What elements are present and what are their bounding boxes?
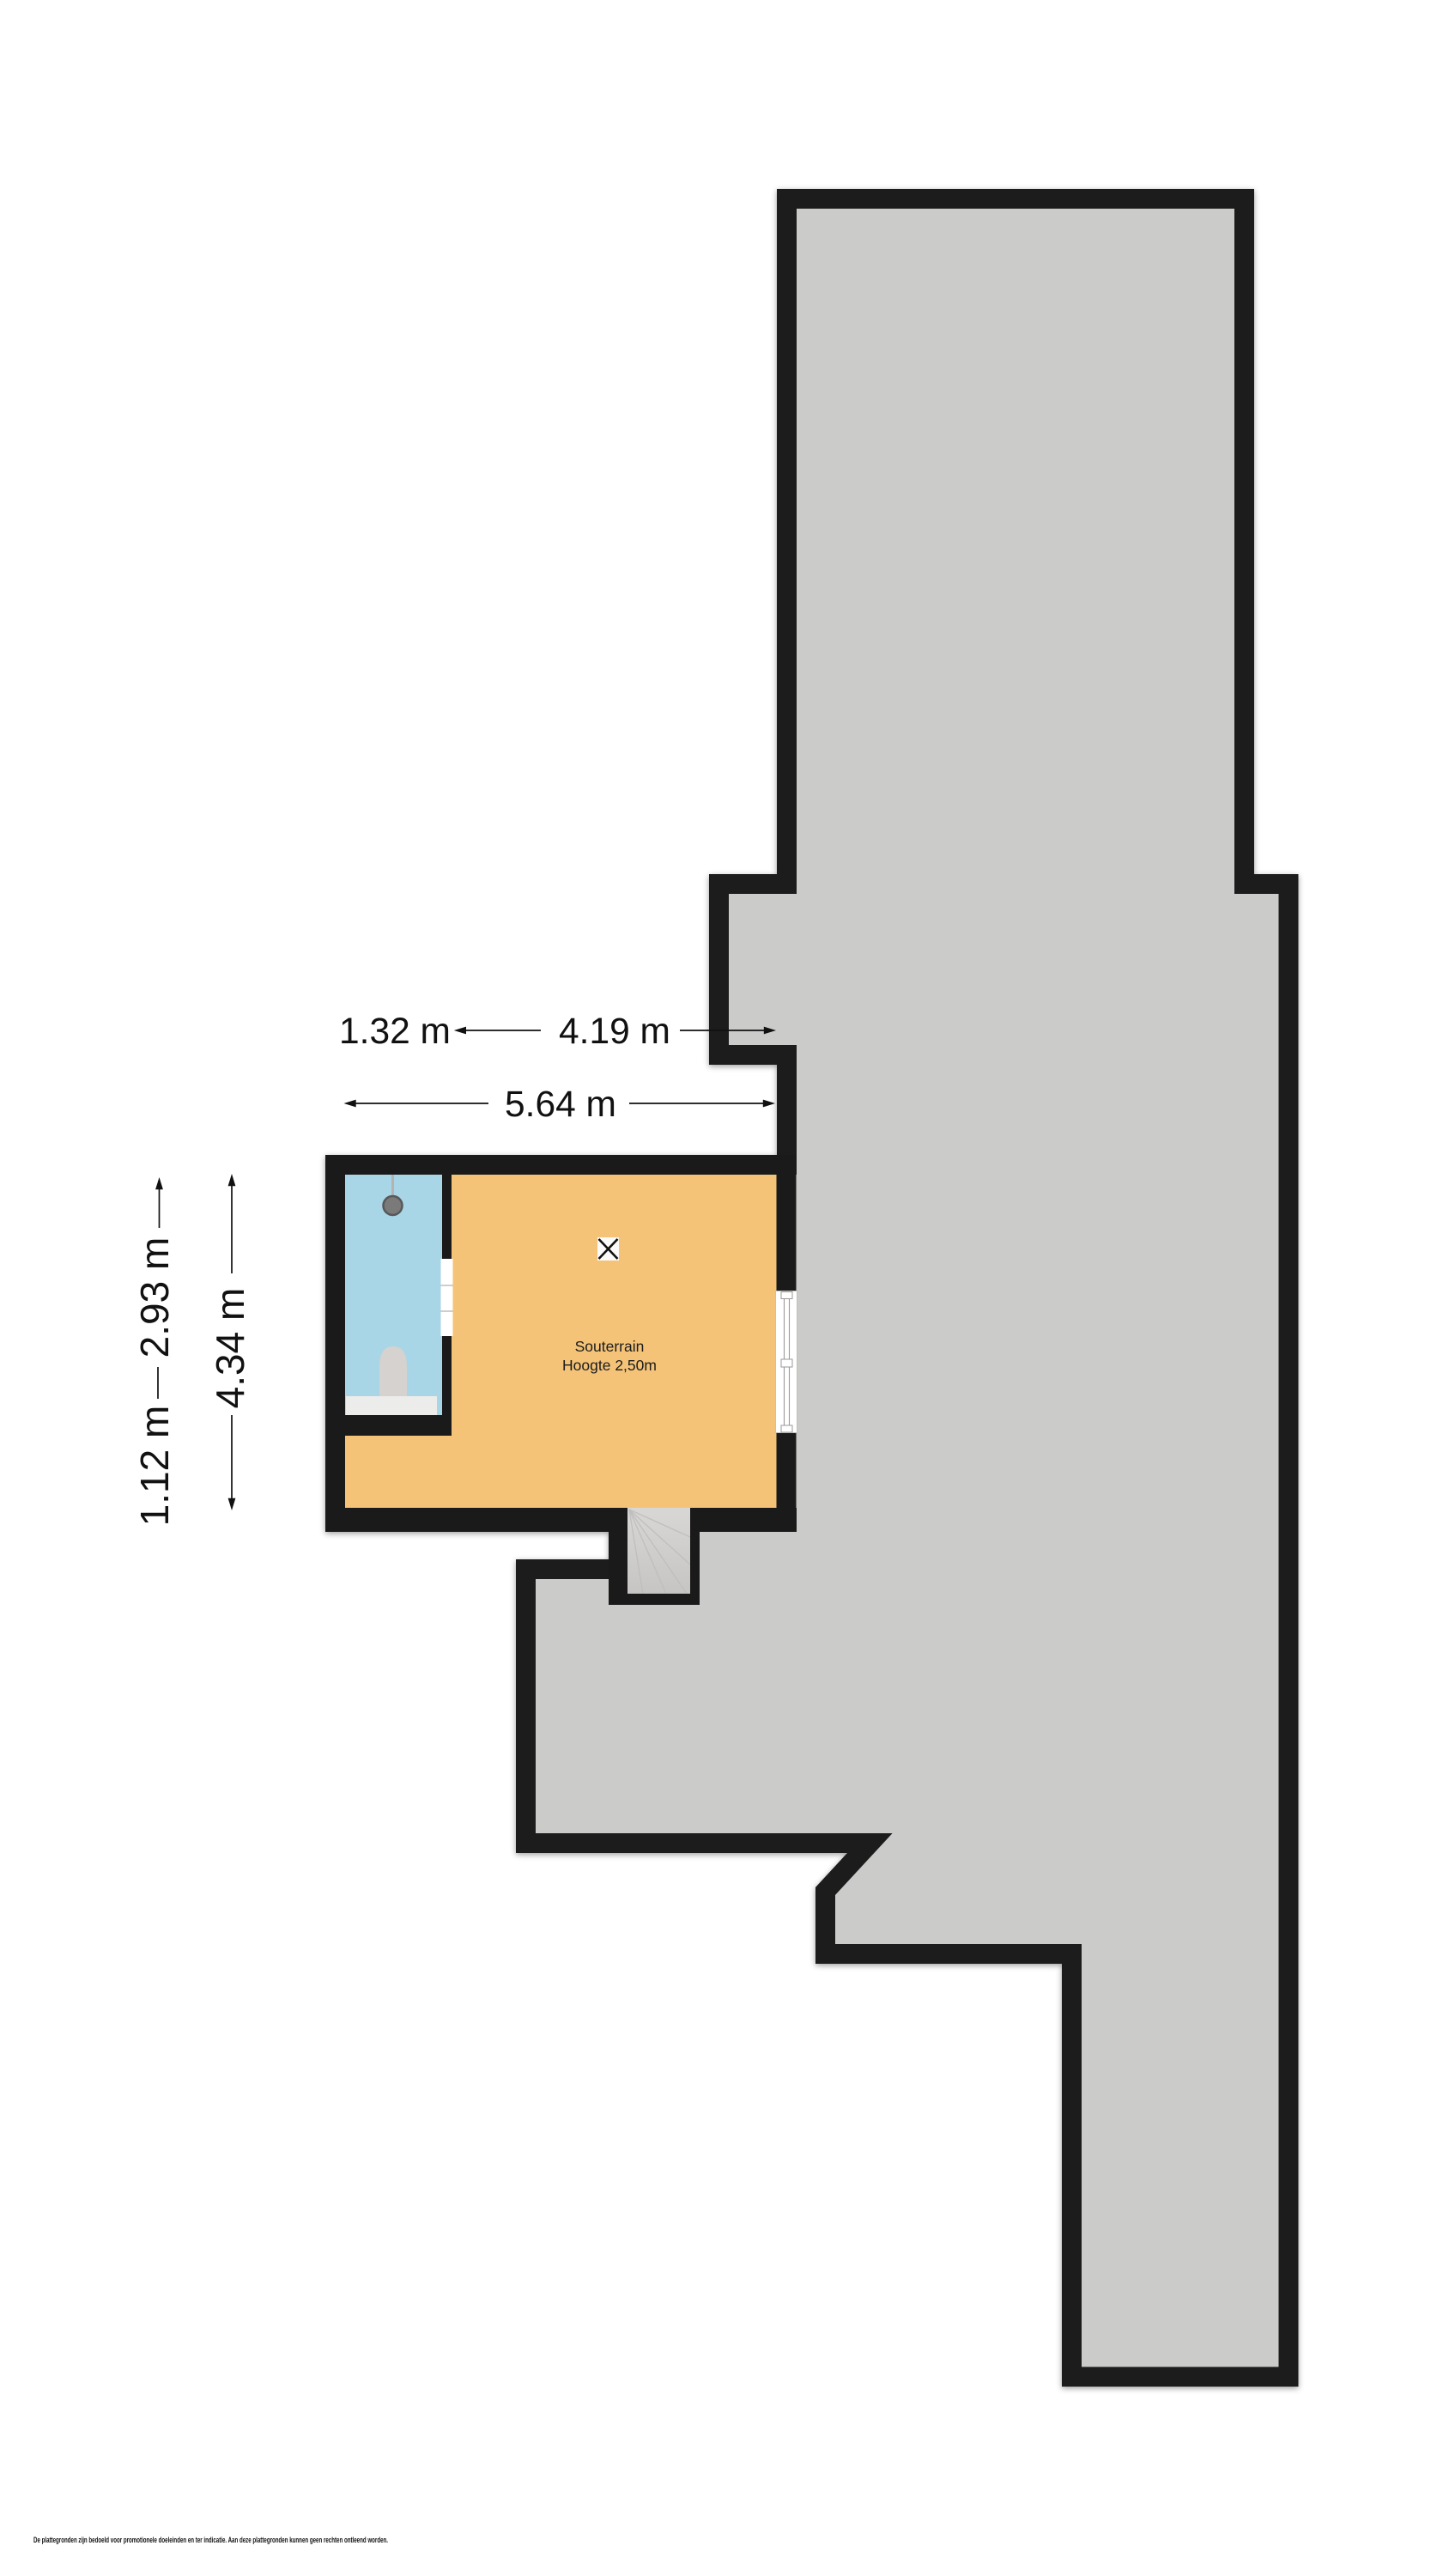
svg-text:5.64 m: 5.64 m bbox=[505, 1084, 616, 1125]
svg-text:1.12 m: 1.12 m bbox=[132, 1406, 177, 1527]
svg-text:1.32 m: 1.32 m bbox=[339, 1012, 451, 1052]
svg-text:De plattegronden zijn bedoeld: De plattegronden zijn bedoeld voor promo… bbox=[33, 2536, 388, 2545]
svg-text:4.34 m: 4.34 m bbox=[208, 1288, 252, 1409]
svg-text:Souterrain: Souterrain bbox=[575, 1338, 645, 1355]
svg-text:4.19 m: 4.19 m bbox=[559, 1012, 670, 1052]
svg-text:2.93 m: 2.93 m bbox=[132, 1237, 177, 1358]
svg-text:Hoogte 2,50m: Hoogte 2,50m bbox=[562, 1357, 657, 1374]
